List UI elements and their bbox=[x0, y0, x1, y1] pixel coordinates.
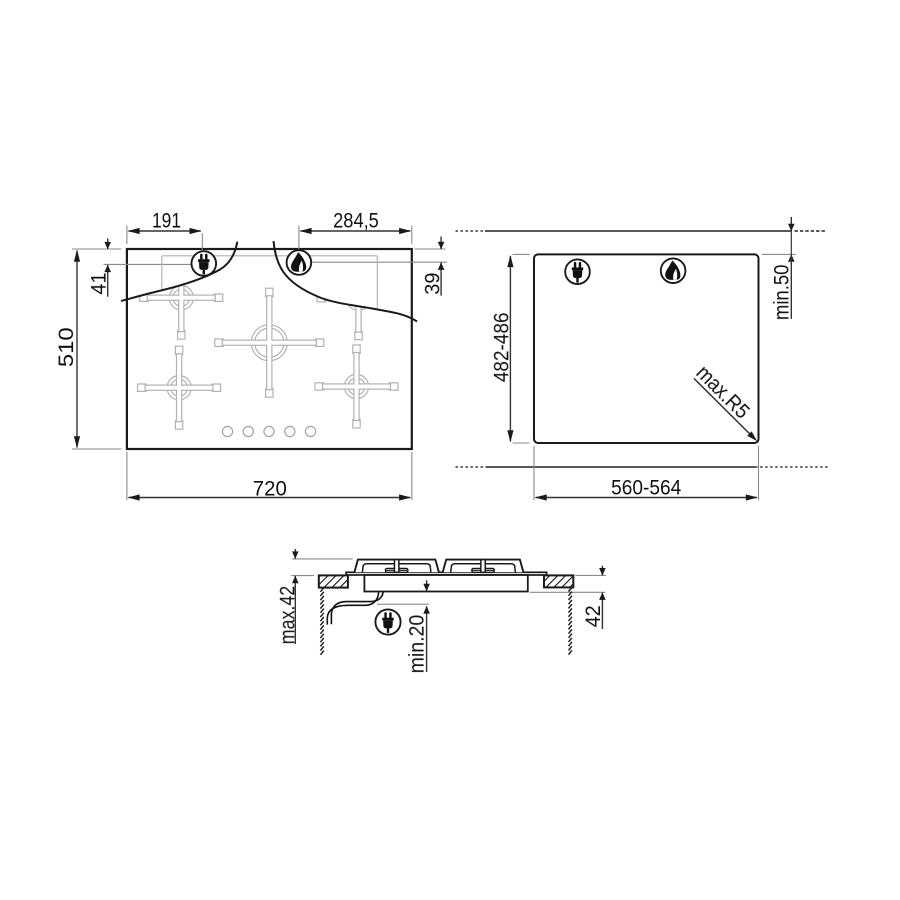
svg-text:42: 42 bbox=[582, 605, 605, 627]
svg-text:720: 720 bbox=[253, 477, 287, 500]
svg-text:284,5: 284,5 bbox=[333, 209, 379, 232]
svg-text:482-486: 482-486 bbox=[490, 312, 513, 382]
svg-text:max.42: max.42 bbox=[276, 586, 299, 645]
svg-text:560-564: 560-564 bbox=[611, 477, 681, 500]
svg-text:510: 510 bbox=[55, 327, 78, 367]
svg-text:min.50: min.50 bbox=[770, 265, 793, 321]
svg-text:min.20: min.20 bbox=[406, 615, 429, 674]
svg-text:41: 41 bbox=[88, 273, 111, 295]
svg-text:39: 39 bbox=[421, 273, 444, 295]
svg-text:191: 191 bbox=[152, 209, 181, 232]
